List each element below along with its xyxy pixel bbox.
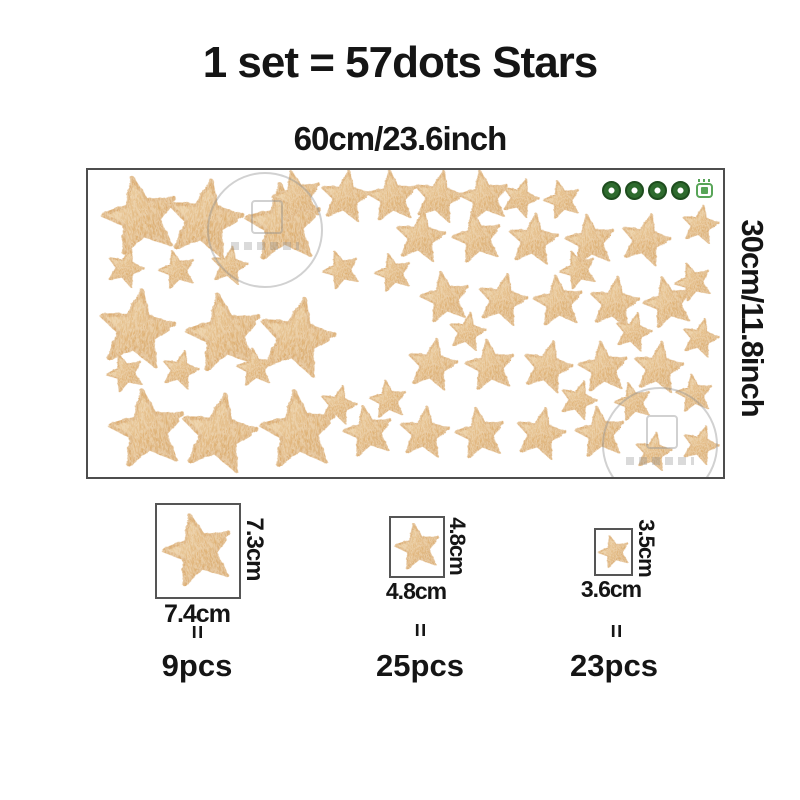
eco-round-stamp-icon [671, 181, 690, 200]
star-sticker-s [498, 174, 543, 219]
star-sticker-m [616, 209, 675, 267]
size-sample-box-large [155, 503, 241, 599]
star-sticker-l [105, 385, 189, 467]
star-sticker-s [540, 177, 584, 221]
page-title: 1 set = 57dots Stars [0, 38, 800, 88]
large-star-height-label: 7.3cm [240, 509, 268, 589]
medium-star-sample-icon [393, 523, 442, 572]
star-sticker-s [155, 247, 199, 291]
product-infographic: 1 set = 57dots Stars 60cm/23.6inch 30cm/… [0, 0, 800, 800]
large-star-count: 9pcs [117, 648, 277, 684]
certification-badges [602, 181, 713, 200]
star-sticker-m [318, 170, 373, 222]
star-sticker-s [368, 378, 409, 418]
small-star-sample-icon [597, 535, 631, 569]
star-sticker-m [452, 404, 508, 459]
star-sticker-l [95, 286, 179, 368]
watermark-stamp [207, 172, 323, 288]
small-star-count: 23pcs [534, 648, 694, 684]
star-sticker-m [507, 212, 560, 264]
eco-round-stamp-icon [602, 181, 621, 200]
star-sticker-s [371, 250, 415, 294]
star-sticker-m [456, 170, 512, 222]
star-sticker-m [405, 335, 461, 390]
star-sticker-s [159, 347, 203, 390]
star-sticker-l [96, 170, 184, 257]
size-sample-box-medium [389, 516, 445, 578]
eco-round-stamp-icon [648, 181, 667, 200]
star-sticker-m [518, 336, 577, 394]
star-sticker-m [512, 404, 569, 461]
star-sticker-s [318, 246, 364, 292]
sheet-width-dimension: 60cm/23.6inch [0, 120, 800, 158]
eco-round-stamp-icon [625, 181, 644, 200]
star-sticker-m [398, 405, 451, 457]
star-sticker-m [410, 170, 467, 223]
star-sticker-m [417, 268, 473, 323]
sheet-height-dimension: 30cm/11.8inch [732, 183, 772, 453]
sticker-sheet [86, 168, 725, 479]
star-sticker-l [176, 388, 262, 473]
large-star-sample-icon [160, 513, 236, 589]
star-sticker-m [365, 170, 418, 221]
small-star-height-label: 3.5cm [633, 516, 659, 580]
small-star-width-label: 3.6cm [551, 576, 671, 603]
star-sticker-s [680, 203, 722, 244]
star-sticker-s [679, 315, 723, 358]
star-sticker-m [474, 270, 531, 327]
medium-star-count: 25pcs [340, 648, 500, 684]
star-sticker-m [393, 208, 448, 262]
size-sample-box-small [594, 528, 633, 576]
medium-star-height-label: 4.8cm [444, 511, 470, 581]
eco-seal-icon [696, 183, 713, 198]
